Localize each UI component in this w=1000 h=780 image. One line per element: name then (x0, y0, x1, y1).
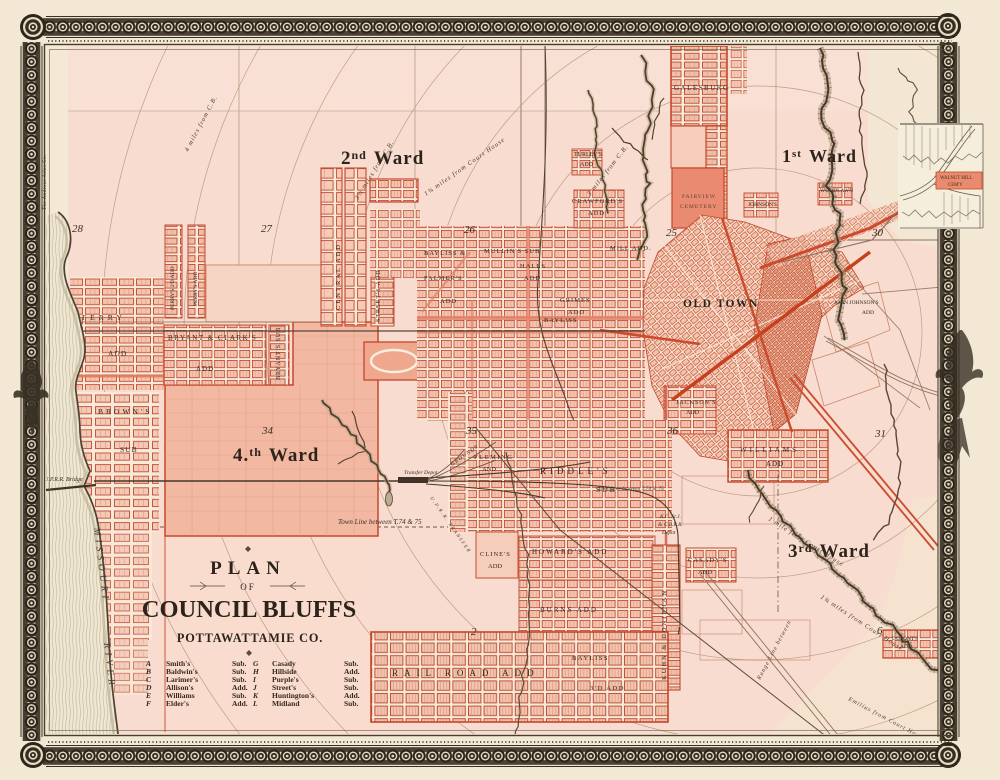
svg-text:BRYANT & CLARK'S: BRYANT & CLARK'S (168, 334, 257, 342)
svg-text:MULLIN'S SUB: MULLIN'S SUB (484, 248, 540, 255)
svg-text:JACKSON'S: JACKSON'S (676, 400, 716, 406)
svg-text:BROWN'S: BROWN'S (98, 407, 152, 416)
svg-text:Town Line between T.74 & 75: Town Line between T.74 & 75 (338, 518, 422, 526)
svg-text:U.P.R.R. Bridge: U.P.R.R. Bridge (44, 477, 83, 483)
svg-text:BAYLISS: BAYLISS (572, 655, 609, 662)
svg-text:ADD: ADD (862, 310, 874, 316)
svg-text:ADD: ADD (568, 309, 585, 316)
svg-text:WOODLAWN: WOODLAWN (820, 188, 853, 194)
svg-text:POTTAWATTAMIE CO.: POTTAWATTAMIE CO. (177, 631, 323, 645)
svg-text:L: L (252, 699, 258, 708)
svg-text:HALLS: HALLS (520, 263, 546, 270)
svg-text:35: 35 (465, 425, 478, 437)
svg-text:26: 26 (464, 224, 476, 236)
svg-text:PERRY'S 2'D ADD: PERRY'S 2'D ADD (170, 266, 176, 310)
svg-text:PALMER'S: PALMER'S (424, 275, 463, 282)
svg-text:FLEMING: FLEMING (474, 454, 513, 461)
svg-text:2: 2 (471, 626, 477, 638)
svg-text:CLINE'S: CLINE'S (480, 551, 511, 558)
svg-text:Depot: Depot (661, 530, 676, 536)
svg-text:JOHNSON'S: JOHNSON'S (748, 202, 777, 208)
svg-text:PERRY'S ADD: PERRY'S ADD (193, 272, 199, 306)
svg-text:ADD: ADD (108, 349, 127, 358)
svg-text:FERRY: FERRY (82, 313, 126, 322)
svg-text:BRYANT'S SUB: BRYANT'S SUB (276, 327, 282, 380)
svg-text:CENTRAL ADD: CENTRAL ADD (335, 243, 342, 310)
svg-text:F: F (146, 699, 151, 708)
svg-text:PLAN: PLAN (210, 558, 286, 579)
svg-text:CASADY'S: CASADY'S (688, 557, 728, 564)
svg-text:& C.B.R.R.: & C.B.R.R. (658, 522, 683, 528)
svg-text:ADD: ADD (588, 210, 605, 217)
svg-text:Chas. Shober & Co.: Chas. Shober & Co. (954, 671, 959, 720)
svg-text:Add.: Add. (232, 699, 248, 708)
svg-text:GRIMES: GRIMES (560, 297, 591, 304)
svg-text:ADD: ADD (524, 275, 541, 282)
svg-text:MILL ADD.: MILL ADD. (610, 245, 652, 252)
svg-text:ADD: ADD (580, 162, 594, 168)
svg-text:COUNCIL BLUFFS: COUNCIL BLUFFS (142, 596, 356, 623)
svg-text:Town Line between T.74 & 75: Town Line between T.74 & 75 (598, 485, 664, 492)
svg-text:STREET'S ADD: STREET'S ADD (376, 269, 382, 322)
svg-text:JOHN JOHNSON'S: JOHN JOHNSON'S (834, 300, 879, 306)
svg-text:CEMETERY: CEMETERY (680, 204, 717, 210)
svg-text:AND: AND (482, 466, 496, 473)
svg-text:KUHN & DONIPHAN: KUHN & DONIPHAN (661, 589, 668, 680)
svg-text:ADD: ADD (698, 569, 712, 576)
svg-text:OF: OF (240, 582, 256, 592)
svg-text:27: 27 (261, 223, 273, 235)
svg-text:34: 34 (261, 425, 274, 437)
svg-text:BURNS ADD: BURNS ADD (540, 606, 598, 614)
svg-text:Midland: Midland (272, 699, 300, 708)
svg-text:ADD: ADD (686, 410, 700, 416)
svg-text:4.thWard: 4.thWard (233, 445, 319, 466)
svg-text:RIDDLE'S: RIDDLE'S (540, 466, 612, 476)
svg-text:WALNUT HILL: WALNUT HILL (940, 176, 972, 181)
svg-text:HOWARD'S ADD: HOWARD'S ADD (532, 548, 608, 556)
svg-text:3'D ADD: 3'D ADD (590, 685, 625, 692)
svg-text:RAIL ROAD ADD: RAIL ROAD ADD (392, 668, 540, 678)
svg-text:Sub.: Sub. (344, 699, 359, 708)
svg-text:OLD TOWN: OLD TOWN (683, 298, 759, 310)
svg-text:36: 36 (666, 425, 679, 437)
svg-text:ADD: ADD (440, 298, 457, 305)
svg-text:SUB: SUB (120, 445, 138, 454)
svg-text:ADD: ADD (488, 563, 502, 570)
svg-text:TURLEY'S: TURLEY'S (574, 152, 602, 158)
svg-text:28: 28 (72, 223, 84, 235)
svg-text:31: 31 (874, 428, 886, 440)
svg-text:GALESBURG: GALESBURG (674, 84, 730, 92)
svg-text:Transfer Depot: Transfer Depot (404, 469, 438, 476)
svg-text:K.C. St.J.: K.C. St.J. (659, 514, 681, 520)
svg-text:BAYLISS: BAYLISS (544, 317, 578, 324)
svg-text:1: 1 (676, 625, 682, 637)
svg-text:25: 25 (666, 227, 678, 239)
svg-text:ADD: ADD (766, 460, 784, 468)
svg-text:CRAWFORD'S: CRAWFORD'S (572, 198, 623, 205)
svg-text:30: 30 (871, 227, 884, 239)
svg-text:The Andreas Atlas Co.: The Andreas Atlas Co. (43, 154, 48, 210)
svg-text:CEM'Y: CEM'Y (948, 183, 963, 188)
svg-text:ADD: ADD (196, 365, 214, 373)
svg-text:Elder's: Elder's (166, 699, 189, 708)
svg-text:WILLIAMS: WILLIAMS (740, 446, 799, 454)
svg-text:BAYLISS &: BAYLISS & (424, 250, 466, 257)
svg-text:FAIRVIEW: FAIRVIEW (682, 194, 716, 200)
